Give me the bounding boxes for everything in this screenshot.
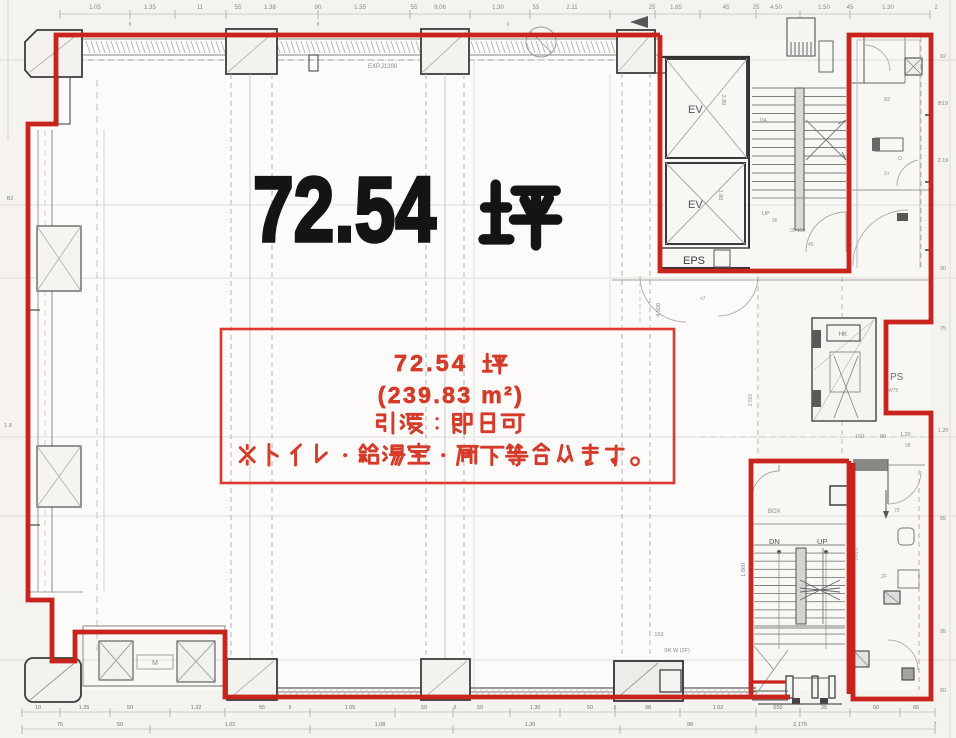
svg-text:8: 8 xyxy=(129,22,132,28)
svg-text:4.50: 4.50 xyxy=(770,5,782,11)
svg-text:M: M xyxy=(152,660,158,667)
svg-text:1.20: 1.20 xyxy=(938,428,949,434)
svg-text:6: 6 xyxy=(507,22,510,28)
svg-text:EXP.J1200: EXP.J1200 xyxy=(368,64,398,70)
svg-text:2F: 2F xyxy=(881,574,887,580)
svg-text:92: 92 xyxy=(940,54,946,60)
svg-text:650: 650 xyxy=(773,705,782,711)
svg-text:98: 98 xyxy=(905,443,911,449)
svg-text:92: 92 xyxy=(884,97,890,103)
svg-text:1.38: 1.38 xyxy=(264,5,276,11)
svg-text:50: 50 xyxy=(873,705,879,711)
svg-text:2.175: 2.175 xyxy=(793,722,807,728)
svg-text:1.50: 1.50 xyxy=(818,5,830,11)
svg-text:O: O xyxy=(898,156,902,162)
svg-text:2.19: 2.19 xyxy=(938,158,949,164)
svg-text:1.30: 1.30 xyxy=(530,705,541,711)
svg-text:2.80: 2.80 xyxy=(720,95,726,106)
svg-text:50: 50 xyxy=(421,705,427,711)
svg-text:EV: EV xyxy=(688,199,703,211)
svg-text:7: 7 xyxy=(933,722,936,728)
svg-text:1.35: 1.35 xyxy=(144,5,156,11)
svg-text:153: 153 xyxy=(654,632,663,638)
svg-text:BOX: BOX xyxy=(768,509,781,515)
svg-text:HK: HK xyxy=(839,332,847,338)
svg-text:96: 96 xyxy=(772,218,778,224)
svg-text:50: 50 xyxy=(477,705,483,711)
svg-text:1.02: 1.02 xyxy=(713,705,724,711)
svg-text:1,860: 1,860 xyxy=(741,563,747,577)
svg-text:72.54: 72.54 xyxy=(253,159,436,261)
svg-text:72.54: 72.54 xyxy=(394,350,468,376)
svg-text:98: 98 xyxy=(687,722,693,728)
svg-text:EPS: EPS xyxy=(683,255,705,267)
svg-text:1.30: 1.30 xyxy=(882,5,894,11)
svg-text:11: 11 xyxy=(197,5,204,11)
svg-text:D4: D4 xyxy=(760,118,767,124)
svg-text:2.550: 2.550 xyxy=(748,394,754,407)
svg-text:90: 90 xyxy=(315,5,322,11)
svg-text:9.06: 9.06 xyxy=(434,5,446,11)
svg-text:1.80: 1.80 xyxy=(717,190,723,201)
svg-text:1.08: 1.08 xyxy=(375,722,386,728)
svg-text:2.11: 2.11 xyxy=(566,5,578,11)
svg-text:50: 50 xyxy=(117,722,123,728)
svg-text:(239.83 m²): (239.83 m²) xyxy=(378,382,525,408)
svg-text:1.30: 1.30 xyxy=(525,722,536,728)
svg-text:2+: 2+ xyxy=(884,171,890,177)
svg-text:8: 8 xyxy=(454,705,457,711)
svg-text:65: 65 xyxy=(913,705,919,711)
svg-text:98: 98 xyxy=(645,705,651,711)
svg-text:1.35: 1.35 xyxy=(354,5,366,11)
svg-text:UP: UP xyxy=(762,211,770,217)
svg-text:EV: EV xyxy=(688,104,703,116)
svg-text:95: 95 xyxy=(940,629,946,635)
svg-text:B2: B2 xyxy=(7,196,14,202)
svg-text:n7: n7 xyxy=(700,296,706,302)
svg-text:25: 25 xyxy=(753,5,760,11)
svg-text:SK W (2F): SK W (2F) xyxy=(664,648,690,654)
svg-text:75: 75 xyxy=(57,722,63,728)
svg-text:60: 60 xyxy=(940,688,946,694)
svg-text:10: 10 xyxy=(35,705,41,711)
svg-text:25: 25 xyxy=(649,5,656,11)
svg-text:45: 45 xyxy=(847,5,854,11)
svg-text:45: 45 xyxy=(723,5,730,11)
svg-text:1.30: 1.30 xyxy=(492,5,504,11)
svg-text:1.8: 1.8 xyxy=(4,423,12,429)
svg-text:1.65: 1.65 xyxy=(670,5,682,11)
svg-text:8: 8 xyxy=(317,22,320,28)
svg-text:55: 55 xyxy=(411,5,418,11)
svg-text:1.32: 1.32 xyxy=(191,705,202,711)
svg-text:8: 8 xyxy=(614,705,617,711)
svg-text:25: 25 xyxy=(821,705,827,711)
svg-text:05 150: 05 150 xyxy=(790,228,806,234)
svg-text:150: 150 xyxy=(855,434,864,440)
svg-text:1.02: 1.02 xyxy=(225,722,236,728)
svg-text:B19: B19 xyxy=(938,101,948,107)
svg-text:55: 55 xyxy=(235,5,242,11)
svg-text:55: 55 xyxy=(533,5,540,11)
svg-text:55: 55 xyxy=(259,705,265,711)
svg-text:1.05: 1.05 xyxy=(345,705,356,711)
svg-text:65: 65 xyxy=(940,516,946,522)
svg-text:45: 45 xyxy=(808,242,814,248)
svg-text:W75: W75 xyxy=(888,388,899,394)
svg-text:80: 80 xyxy=(880,434,886,440)
svg-text:70: 70 xyxy=(894,508,900,514)
svg-text:90: 90 xyxy=(940,266,946,272)
svg-text:4.500: 4.500 xyxy=(656,303,662,317)
svg-text:1.05: 1.05 xyxy=(89,5,101,11)
svg-text:8: 8 xyxy=(289,705,292,711)
svg-text:50: 50 xyxy=(587,705,593,711)
svg-text:1.25: 1.25 xyxy=(79,705,90,711)
svg-text:50: 50 xyxy=(127,705,133,711)
svg-text:75: 75 xyxy=(940,326,946,332)
svg-text:1.20: 1.20 xyxy=(900,432,911,438)
svg-text:PS: PS xyxy=(890,372,904,383)
